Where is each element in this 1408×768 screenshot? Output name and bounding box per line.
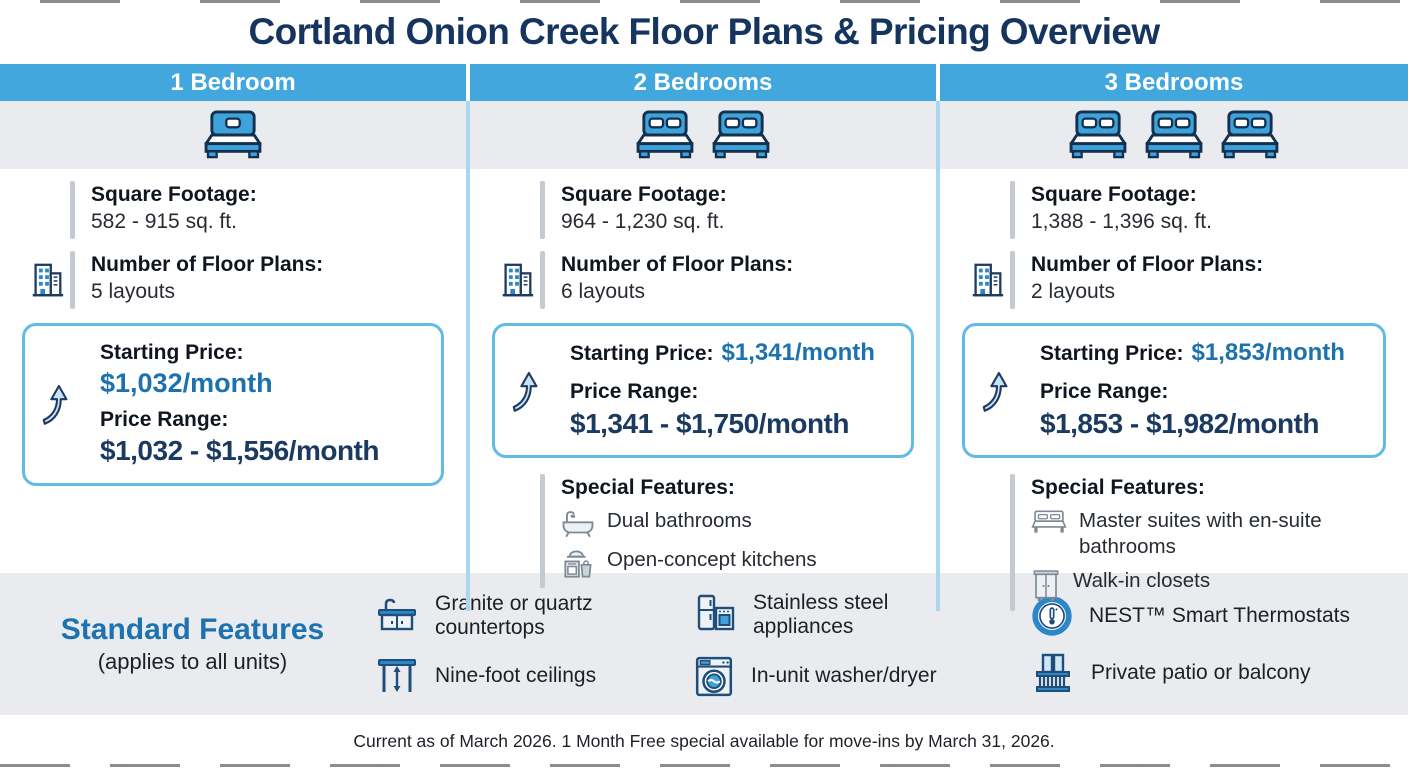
growth-arrow-icon [40,381,74,425]
square-footage-row: Square Footage: 582 - 915 sq. ft. [24,181,452,239]
bed-icon [1067,110,1129,160]
starting-price-value: $1,341/month [722,339,875,366]
square-footage-value: 1,388 - 1,396 sq. ft. [1031,208,1212,235]
floor-plans-row: Number of Floor Plans: 2 layouts [964,251,1394,309]
bed-icon [710,110,772,160]
feature-label: Walk-in closets [1073,568,1210,594]
feature-label: Open-concept kitchens [607,547,817,573]
building-icon [28,261,66,299]
starting-price-label: Starting Price: [1040,342,1184,365]
price-range-label: Price Range: [100,406,379,434]
torn-edge-artifact [0,0,1408,3]
bed-icon [1219,110,1281,160]
special-features: Special Features: Dual bathrooms [494,474,922,588]
plans-grid: Square Footage: 582 - 915 sq. ft. [0,101,1408,573]
header-2-bedrooms: 2 Bedrooms [470,64,940,101]
footer-note: Current as of March 2026. 1 Month Free s… [353,731,1054,752]
washer-icon [693,655,735,697]
header-3-bedrooms: 3 Bedrooms [940,64,1408,101]
standard-features-heading: Standard Features [10,613,375,648]
column-2-bedrooms: Square Footage: 964 - 1,230 sq. ft. [470,101,940,611]
floor-plans-row: Number of Floor Plans: 6 layouts [494,251,922,309]
wardrobe-icon [1031,569,1061,603]
starting-price-label: Starting Price: [570,342,714,365]
price-box: Starting Price:$1,853/month Price Range:… [962,323,1386,458]
torn-edge-artifact [0,764,1408,767]
starting-price-value: $1,853/month [1192,339,1345,366]
special-features: Special Features: M [964,474,1394,610]
feature-label: Nine-foot ceilings [435,664,596,688]
square-footage-label: Square Footage: [91,181,257,208]
column-3-bedrooms: Square Footage: 1,388 - 1,396 sq. ft. [940,101,1408,611]
building-icon [498,261,536,299]
feature-walkin-closets: Walk-in closets [1031,568,1379,603]
feature-label: Master suites with en-suite bathrooms [1079,508,1379,559]
square-footage-row: Square Footage: 1,388 - 1,396 sq. ft. [964,181,1394,239]
floor-plans-label: Number of Floor Plans: [1031,251,1263,278]
floor-plans-value: 6 layouts [561,278,793,305]
bed-icon [1143,110,1205,160]
bed-icon [634,110,696,160]
accent-bar [1010,181,1015,239]
kitchen-icon [561,548,595,580]
header-1-bedroom: 1 Bedroom [0,64,470,101]
bed-icon-strip [0,101,466,169]
price-range-value: $1,341 - $1,750/month [570,407,875,441]
column-header-band: 1 Bedroom 2 Bedrooms 3 Bedrooms [0,64,1408,101]
starting-price-label: Starting Price: [100,339,379,367]
accent-bar [1010,251,1015,309]
growth-arrow-icon [980,368,1014,412]
balcony-icon [1031,653,1075,693]
bed-icon-strip [940,101,1408,169]
growth-arrow-icon [510,368,544,412]
price-range-value: $1,853 - $1,982/month [1040,407,1345,441]
feature-ceilings: Nine-foot ceilings [375,656,693,696]
square-footage-label: Square Footage: [1031,181,1212,208]
price-box: Starting Price:$1,341/month Price Range:… [492,323,914,458]
price-range-label: Price Range: [570,378,875,406]
bed-icon [634,110,696,160]
feature-master-suites: Master suites with en-suite bathrooms [1031,508,1379,559]
price-range-label: Price Range: [1040,378,1345,406]
floor-plans-value: 2 layouts [1031,278,1263,305]
accent-bar [70,181,75,239]
price-box: Starting Price: $1,032/month Price Range… [22,323,444,486]
building-icon [968,261,1006,299]
floor-plans-label: Number of Floor Plans: [91,251,323,278]
floor-plans-value: 5 layouts [91,278,323,305]
column-1-bedroom: Square Footage: 582 - 915 sq. ft. [0,101,470,611]
standard-features-subheading: (applies to all units) [10,649,375,675]
starting-price-value: $1,032/month [100,367,379,399]
feature-label: Private patio or balcony [1091,661,1310,685]
feature-washer-dryer: In-unit washer/dryer [693,655,1031,697]
price-range-value: $1,032 - $1,556/month [100,434,379,468]
footer: Current as of March 2026. 1 Month Free s… [0,715,1408,768]
feature-label: Dual bathrooms [607,508,752,534]
bed-icon [1143,110,1205,160]
floor-plans-label: Number of Floor Plans: [561,251,793,278]
ceiling-height-icon [375,656,419,696]
accent-bar [540,474,545,588]
bathtub-icon [561,509,595,539]
accent-bar [540,251,545,309]
special-features-label: Special Features: [561,476,817,500]
title-bar: Cortland Onion Creek Floor Plans & Prici… [0,0,1408,64]
special-features-label: Special Features: [1031,476,1379,500]
square-footage-label: Square Footage: [561,181,727,208]
bed-icon [1067,110,1129,160]
infographic-page: Cortland Onion Creek Floor Plans & Prici… [0,0,1408,768]
square-footage-value: 964 - 1,230 sq. ft. [561,208,727,235]
accent-bar [70,251,75,309]
feature-dual-bathrooms: Dual bathrooms [561,508,817,539]
square-footage-value: 582 - 915 sq. ft. [91,208,257,235]
bed-icon-strip [470,101,936,169]
bed-icon [710,110,772,160]
page-title: Cortland Onion Creek Floor Plans & Prici… [248,11,1159,53]
floor-plans-row: Number of Floor Plans: 5 layouts [24,251,452,309]
accent-bar [1010,474,1015,610]
bed-icon [202,110,264,160]
accent-bar [540,181,545,239]
feature-open-kitchens: Open-concept kitchens [561,547,817,580]
feature-patio: Private patio or balcony [1031,653,1408,693]
bed-icon [1219,110,1281,160]
standard-features-header: Standard Features (applies to all units) [0,613,375,676]
square-footage-row: Square Footage: 964 - 1,230 sq. ft. [494,181,922,239]
feature-label: In-unit washer/dryer [751,664,937,688]
master-bed-icon [1031,509,1067,535]
